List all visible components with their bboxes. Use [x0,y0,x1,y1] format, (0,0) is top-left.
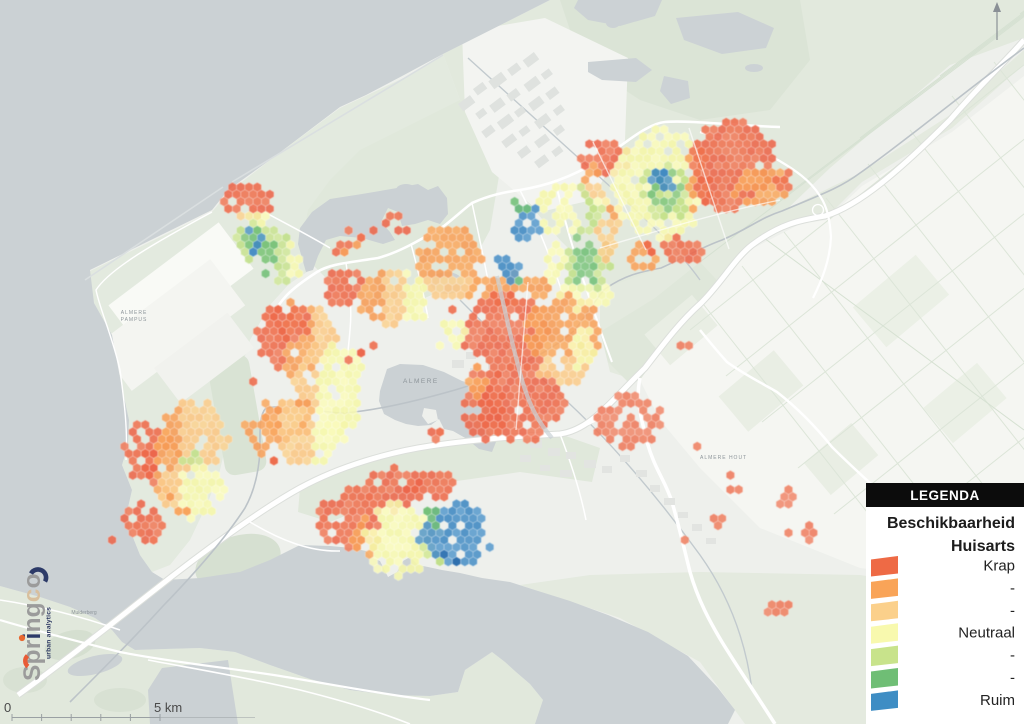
svg-text:-: - [1010,580,1015,597]
svg-text:Ruim: Ruim [980,692,1015,709]
svg-text:PAMPUS: PAMPUS [121,317,148,323]
svg-text:Springco: Springco [19,573,46,681]
svg-text:Huisarts: Huisarts [951,538,1015,555]
svg-text:Muiderberg: Muiderberg [71,610,97,616]
svg-text:-: - [1010,602,1015,619]
svg-text:Neutraal: Neutraal [958,625,1015,642]
svg-text:Beschikbaarheid: Beschikbaarheid [887,515,1015,532]
svg-text:ALMERE: ALMERE [403,378,439,385]
svg-text:urban analytics: urban analytics [46,607,53,659]
svg-text:ALMERE: ALMERE [121,310,148,316]
svg-text:ALMERE HOUT: ALMERE HOUT [700,455,747,461]
svg-text:Krap: Krap [983,558,1015,575]
svg-text:-: - [1010,670,1015,687]
svg-text:LEGENDA: LEGENDA [910,488,980,503]
svg-text:5 km: 5 km [154,700,182,715]
svg-text:-: - [1010,647,1015,664]
svg-text:0: 0 [4,700,11,715]
